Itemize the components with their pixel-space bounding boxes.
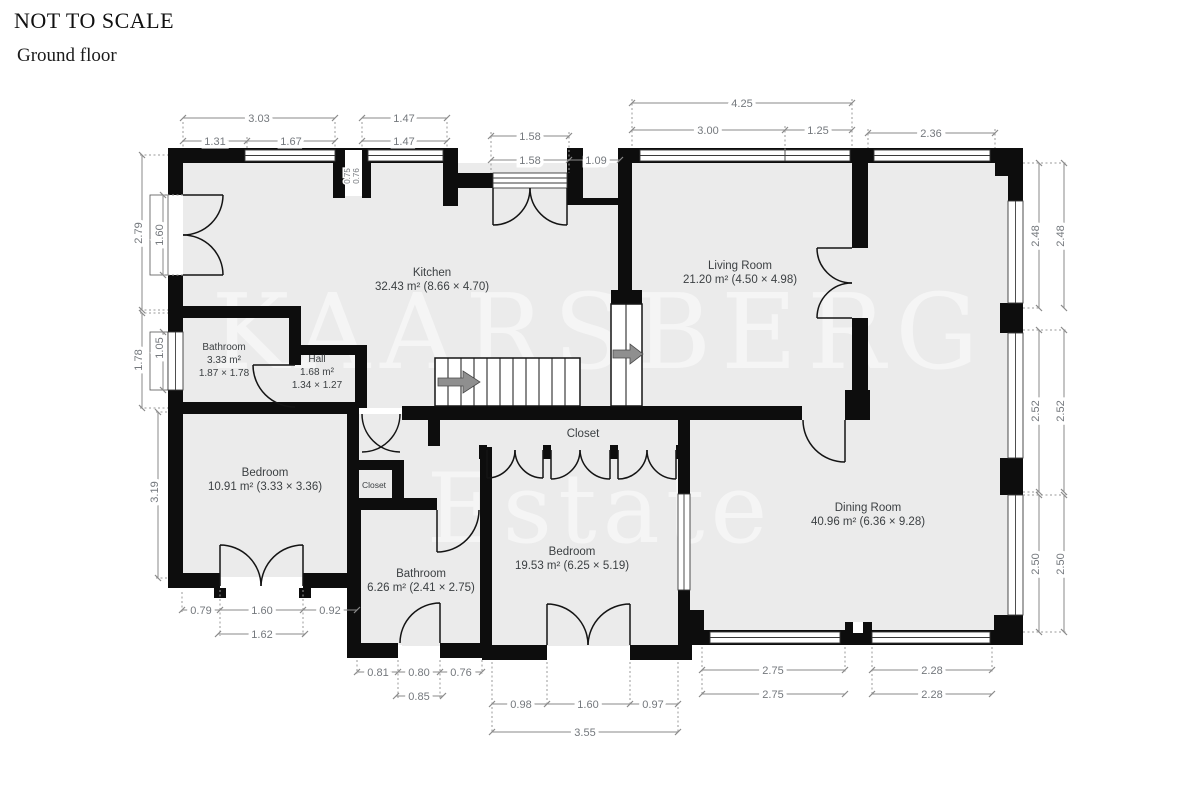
dim-label: 2.50	[1055, 553, 1067, 574]
room-label-hall-size: 1.34 × 1.27	[292, 380, 343, 391]
dim-label: 1.62	[251, 629, 272, 641]
dim-label: 1.60	[251, 605, 272, 617]
dim-label: 2.52	[1030, 400, 1042, 421]
dim-label: 2.75	[762, 665, 783, 677]
dim-label: 1.67	[280, 136, 301, 148]
dim-label: 0.76	[352, 168, 361, 184]
dim-label: 1.47	[393, 113, 414, 125]
dim-label: 0.97	[642, 699, 663, 711]
dim-label: 1.78	[133, 349, 145, 370]
dim-label: 1.25	[807, 125, 828, 137]
room-label-living-size: 21.20 m² (4.50 × 4.98)	[683, 274, 797, 286]
dim-label: 0.80	[408, 667, 429, 679]
room-label-bathroom1: Bathroom	[202, 342, 245, 353]
dim-label: 0.75	[343, 168, 352, 184]
room-label-bedroom2-size: 19.53 m² (6.25 × 5.19)	[515, 560, 629, 572]
floorplan-page: NOT TO SCALE Ground floor KAARSBERG Esta…	[0, 0, 1200, 810]
dim-label: 1.47	[393, 136, 414, 148]
dim-label: 2.28	[921, 689, 942, 701]
dim-label: 1.31	[204, 136, 225, 148]
dim-label: 2.28	[921, 665, 942, 677]
room-label-hall: Hall	[308, 354, 325, 365]
dim-label: 2.48	[1055, 225, 1067, 246]
room-label-bathroom2: Bathroom	[396, 568, 446, 580]
dim-label: 1.60	[577, 699, 598, 711]
dim-label: 2.50	[1030, 553, 1042, 574]
dim-label: 0.76	[450, 667, 471, 679]
floor-title: Ground floor	[17, 45, 117, 67]
room-label-dining-size: 40.96 m² (6.36 × 9.28)	[811, 516, 925, 528]
dim-label: 2.75	[762, 689, 783, 701]
floorplan-drawing: KAARSBERG Estate	[0, 0, 1200, 810]
dim-label: 1.05	[154, 337, 166, 358]
watermark-line2: Estate	[427, 453, 774, 565]
room-label-bathroom1-area: 3.33 m²	[207, 355, 242, 366]
room-label-bedroom2: Bedroom	[549, 546, 596, 558]
dim-label: 0.98	[510, 699, 531, 711]
dim-label: 2.52	[1055, 400, 1067, 421]
room-label-living: Living Room	[708, 260, 772, 272]
dim-label: 1.58	[519, 155, 540, 167]
dim-label: 2.36	[920, 128, 941, 140]
room-label-dining: Dining Room	[835, 502, 901, 514]
room-label-kitchen: Kitchen	[413, 267, 451, 279]
dim-label: 0.79	[190, 605, 211, 617]
dim-label: 4.25	[731, 98, 752, 110]
dim-label: 3.00	[697, 125, 718, 137]
room-label-bedroom1: Bedroom	[242, 467, 289, 479]
dim-label: 1.09	[585, 155, 606, 167]
dim-label: 3.03	[248, 113, 269, 125]
room-label-bathroom1-size: 1.87 × 1.78	[199, 368, 250, 379]
room-label-hall-area: 1.68 m²	[300, 367, 335, 378]
dim-label: 3.55	[574, 727, 595, 739]
scale-note: NOT TO SCALE	[14, 8, 174, 34]
dim-label: 3.19	[149, 481, 161, 502]
dim-label: 2.48	[1030, 225, 1042, 246]
room-label-closet: Closet	[567, 428, 600, 440]
dim-label: 0.92	[319, 605, 340, 617]
dim-label: 2.79	[133, 222, 145, 243]
room-label-bathroom2-size: 6.26 m² (2.41 × 2.75)	[367, 582, 475, 594]
room-label-kitchen-size: 32.43 m² (8.66 × 4.70)	[375, 281, 489, 293]
dim-label: 1.60	[154, 224, 166, 245]
dim-label: 0.85	[408, 691, 429, 703]
dim-label: 0.81	[367, 667, 388, 679]
dim-label: 1.58	[519, 131, 540, 143]
room-label-closet-small: Closet	[362, 480, 387, 490]
room-label-bedroom1-size: 10.91 m² (3.33 × 3.36)	[208, 481, 322, 493]
